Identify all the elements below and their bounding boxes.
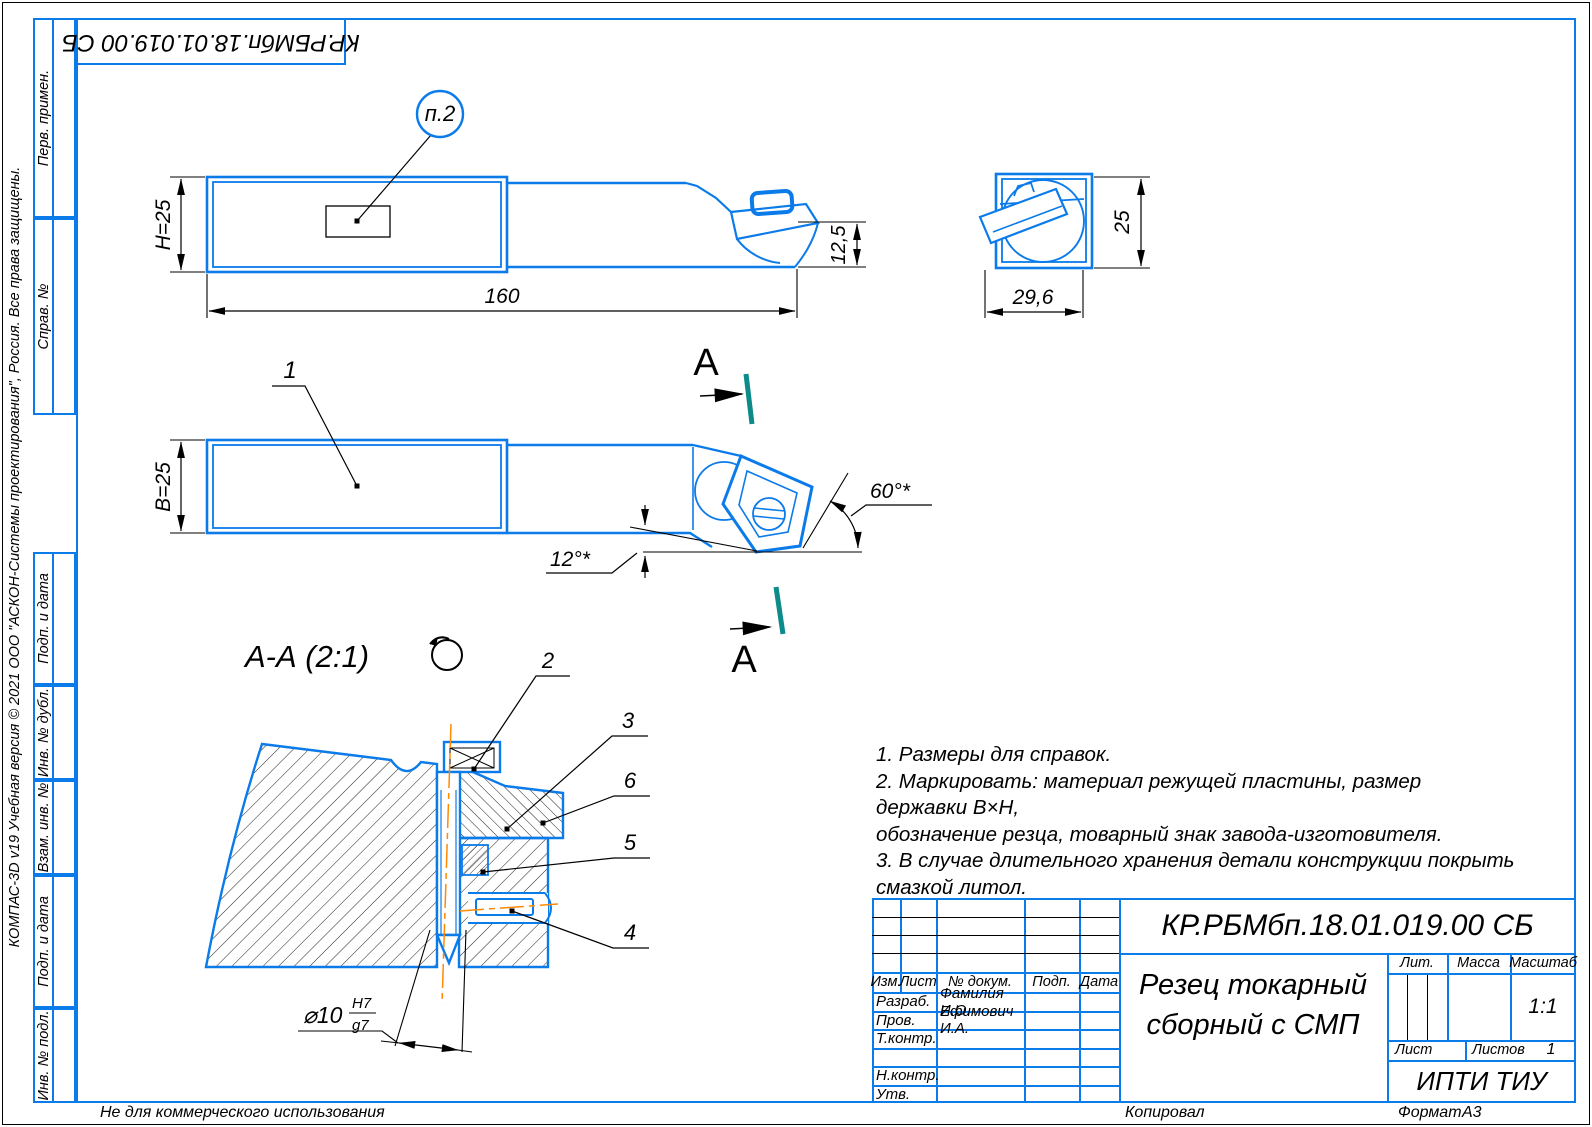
tb-row-utv-label: Утв.	[876, 1085, 936, 1103]
tb-sheet-label: Лист	[1395, 1040, 1463, 1060]
item-6-label: 6	[624, 768, 637, 793]
tb-title-line1: Резец токарный	[1119, 963, 1387, 1008]
balloon-p2-label: п.2	[425, 101, 455, 126]
tb-col-date: Дата	[1079, 972, 1119, 992]
view-section: А-А (2:1) 2	[206, 637, 650, 1052]
dim-H25: H=25	[152, 199, 175, 250]
tb-designation: КР.РБМбп.18.01.019.00 СБ	[1119, 898, 1576, 953]
section-title: А-А (2:1)	[243, 639, 369, 674]
tb-row-tkontr-label: Т.контр.	[876, 1029, 936, 1048]
footer-format-label: Формат	[1398, 1103, 1462, 1123]
footer-format-value: А3	[1462, 1103, 1482, 1123]
tb-mass-label: Масса	[1447, 953, 1510, 973]
note-line-1: 1. Размеры для справок.	[876, 742, 1516, 769]
tb-title-line2: сборный с СМП	[1119, 1003, 1387, 1048]
technical-notes: 1. Размеры для справок. 2. Маркировать: …	[876, 742, 1516, 901]
item-2-label: 2	[541, 648, 554, 673]
tb-row-razrab-label: Разраб.	[876, 992, 936, 1011]
dim-angle-60: 60°*	[870, 480, 911, 503]
noncommercial-watermark: Не для коммерческого использования	[100, 1103, 385, 1123]
view-front: 1 B=25 12°* 60°* А А	[152, 342, 932, 681]
item-4-label: 4	[624, 920, 636, 945]
tb-row-nkontr-label: Н.контр.	[876, 1066, 936, 1085]
view-end: 25 29,6	[980, 174, 1150, 318]
dim-25: 25	[1111, 210, 1134, 235]
rotated-symbol	[432, 640, 462, 670]
tb-scale-value: 1:1	[1510, 973, 1576, 1040]
dim-29-6: 29,6	[1012, 286, 1054, 309]
tb-organization: ИПТИ ТИУ	[1387, 1060, 1576, 1103]
section-body-left	[206, 744, 437, 967]
footer-copied-by: Копировал	[1125, 1103, 1205, 1123]
tb-row-empty-label	[876, 1048, 936, 1066]
section-rocker	[459, 766, 563, 838]
dim-dia10: ⌀10	[303, 1002, 343, 1028]
tb-sheets-label: Листов	[1472, 1040, 1532, 1060]
tb-scale-label: Масштаб	[1510, 953, 1576, 973]
tb-row-prov-label: Пров.	[876, 1011, 936, 1029]
tb-sheets-value: 1	[1536, 1040, 1566, 1060]
dim-B25: B=25	[152, 462, 175, 512]
note-line-4: 3. В случае длительного хранения детали …	[876, 848, 1516, 875]
note-line-3: обозначение резца, товарный знак завода-…	[876, 822, 1516, 849]
dim-12-5: 12,5	[828, 225, 850, 265]
tb-row-prov-value: Ефимович И.А.	[940, 1011, 1024, 1029]
tb-lit-label: Лит.	[1387, 953, 1447, 973]
dim-angle-12: 12°*	[550, 548, 591, 571]
section-mark-bottom	[776, 587, 783, 634]
tb-col-list: Лист	[900, 972, 936, 992]
section-pin	[476, 899, 533, 915]
note-line-2: 2. Маркировать: материал режущей пластин…	[876, 769, 1516, 822]
section-letter-bottom: А	[731, 639, 757, 681]
tb-row-tkontr-value	[940, 1029, 1024, 1048]
item-3-label: 3	[622, 708, 635, 733]
dim-fit-upper: H7	[352, 995, 372, 1012]
item-1-label: 1	[283, 357, 296, 384]
tb-col-izm: Изм.	[872, 972, 900, 992]
dim-160: 160	[484, 285, 519, 308]
tb-col-sign: Подп.	[1024, 972, 1079, 992]
section-letter-top: А	[693, 342, 719, 384]
drawing-sheet: КОМПАС-3D v19 Учебная версия © 2021 ООО …	[0, 0, 1592, 1127]
section-mark-top	[746, 374, 752, 424]
item-5-label: 5	[624, 830, 637, 855]
view-top: п.2 H=25 160 12,5	[152, 91, 866, 318]
